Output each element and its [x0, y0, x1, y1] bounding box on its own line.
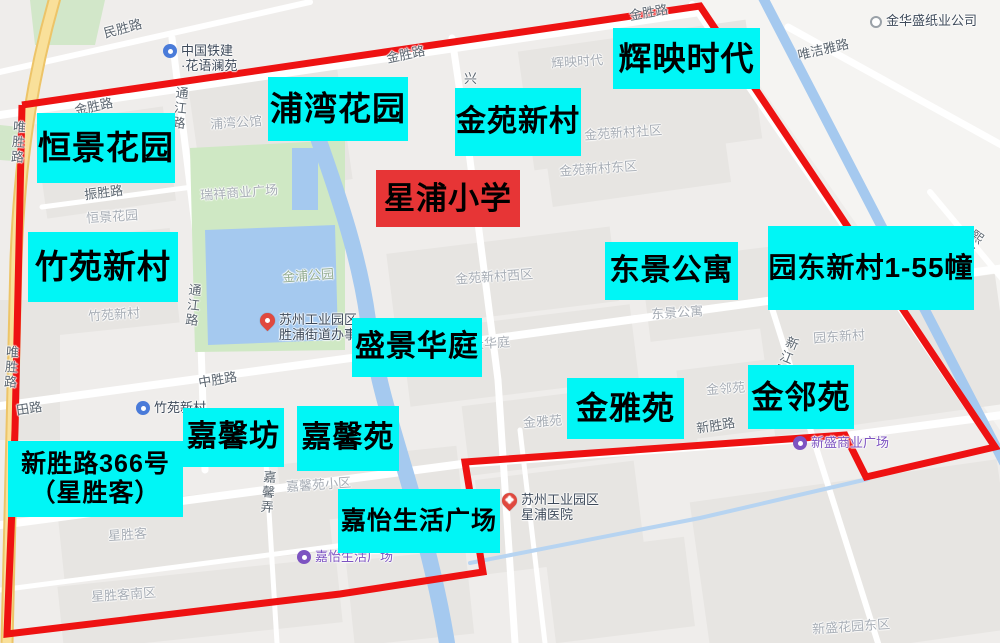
poi-label: 中国铁建·花语澜苑 [181, 43, 237, 73]
poi-label: 金华盛纸业公司 [886, 13, 977, 28]
area-label: 金雅苑 [522, 410, 562, 432]
area-label: 金浦公园 [281, 263, 334, 286]
road-label: 振胜路 [83, 180, 124, 204]
community-label: 金苑新村 [455, 88, 581, 156]
area-label: 新盛花园东区 [811, 613, 890, 637]
poi-label: 苏州工业园区星浦医院 [521, 492, 599, 522]
school-label: 星浦小学 [376, 170, 520, 227]
community-label: 金雅苑 [567, 378, 684, 439]
community-label: 园东新村1-55幢 [768, 226, 974, 310]
road-label: 唯洁雅路 [796, 33, 851, 63]
red-pin-icon [257, 310, 278, 331]
blue-circle-icon [136, 401, 150, 415]
road-label: 民胜路 [101, 13, 144, 41]
area-label: 金邻苑 [705, 377, 745, 399]
community-label: 金邻苑 [748, 365, 854, 429]
blue-circle-icon [163, 44, 177, 58]
community-label: 盛景华庭 [352, 318, 482, 377]
road-label: 嘉馨弄 [256, 469, 279, 515]
area-label: 恒景花园 [85, 204, 138, 227]
map-canvas[interactable]: 恒景花园浦湾花园金苑新村辉映时代竹苑新村东景公寓园东新村1-55幢盛景华庭金雅苑… [0, 0, 1000, 643]
purple-circle-icon [793, 436, 807, 450]
area-label: 金苑新村东区 [558, 155, 637, 179]
community-label: 嘉怡生活广场 [338, 489, 500, 553]
road-label: 田路 [15, 396, 44, 419]
area-label: 竹苑新村 [87, 302, 140, 325]
area-label: 园东新村 [812, 324, 865, 347]
community-label: 东景公寓 [605, 242, 738, 300]
poi-label: 新盛商业广场 [811, 435, 889, 450]
community-label: 新胜路366号（星胜客） [8, 441, 183, 517]
area-label: 星胜客南区 [90, 582, 156, 605]
area-label: 金苑新村社区 [583, 119, 662, 143]
road-label: 唯胜路 [6, 119, 28, 165]
area-label: 星胜客 [107, 523, 147, 545]
community-label: 辉映时代 [613, 28, 760, 89]
area-label: 瑞祥商业广场 [199, 179, 278, 203]
road-label: 中胜路 [197, 366, 239, 391]
gray-dot-icon [870, 16, 882, 28]
red-cross-pin-icon [499, 490, 520, 511]
road-label: 金胜路 [628, 0, 670, 24]
area-label: 浦湾公馆 [209, 110, 262, 133]
road-label: 新胜路 [695, 412, 737, 437]
purple-circle-icon [297, 550, 311, 564]
community-label: 嘉馨苑 [297, 406, 399, 471]
road-label: 通江路 [181, 282, 205, 329]
poi-purple-circle: 新盛商业广场 [793, 435, 889, 450]
community-label: 竹苑新村 [28, 232, 178, 302]
community-label: 恒景花园 [37, 113, 175, 183]
area-label: 辉映时代 [550, 49, 603, 72]
community-label: 嘉馨坊 [183, 408, 284, 467]
area-label: 东景公寓 [650, 300, 703, 323]
poi-gray-dot: 金华盛纸业公司 [870, 13, 977, 28]
community-label: 浦湾花园 [268, 77, 408, 141]
area-label: 金苑新村西区 [454, 263, 533, 287]
road-label: 金胜路 [384, 40, 426, 67]
road-label: 兴 [464, 68, 477, 87]
poi-red-cross-pin: 苏州工业园区星浦医院 [502, 492, 599, 522]
road-label: 唯胜路 [0, 344, 22, 390]
map-annotations-layer: 恒景花园浦湾花园金苑新村辉映时代竹苑新村东景公寓园东新村1-55幢盛景华庭金雅苑… [0, 0, 1000, 643]
poi-blue-circle: 中国铁建·花语澜苑 [163, 43, 237, 73]
